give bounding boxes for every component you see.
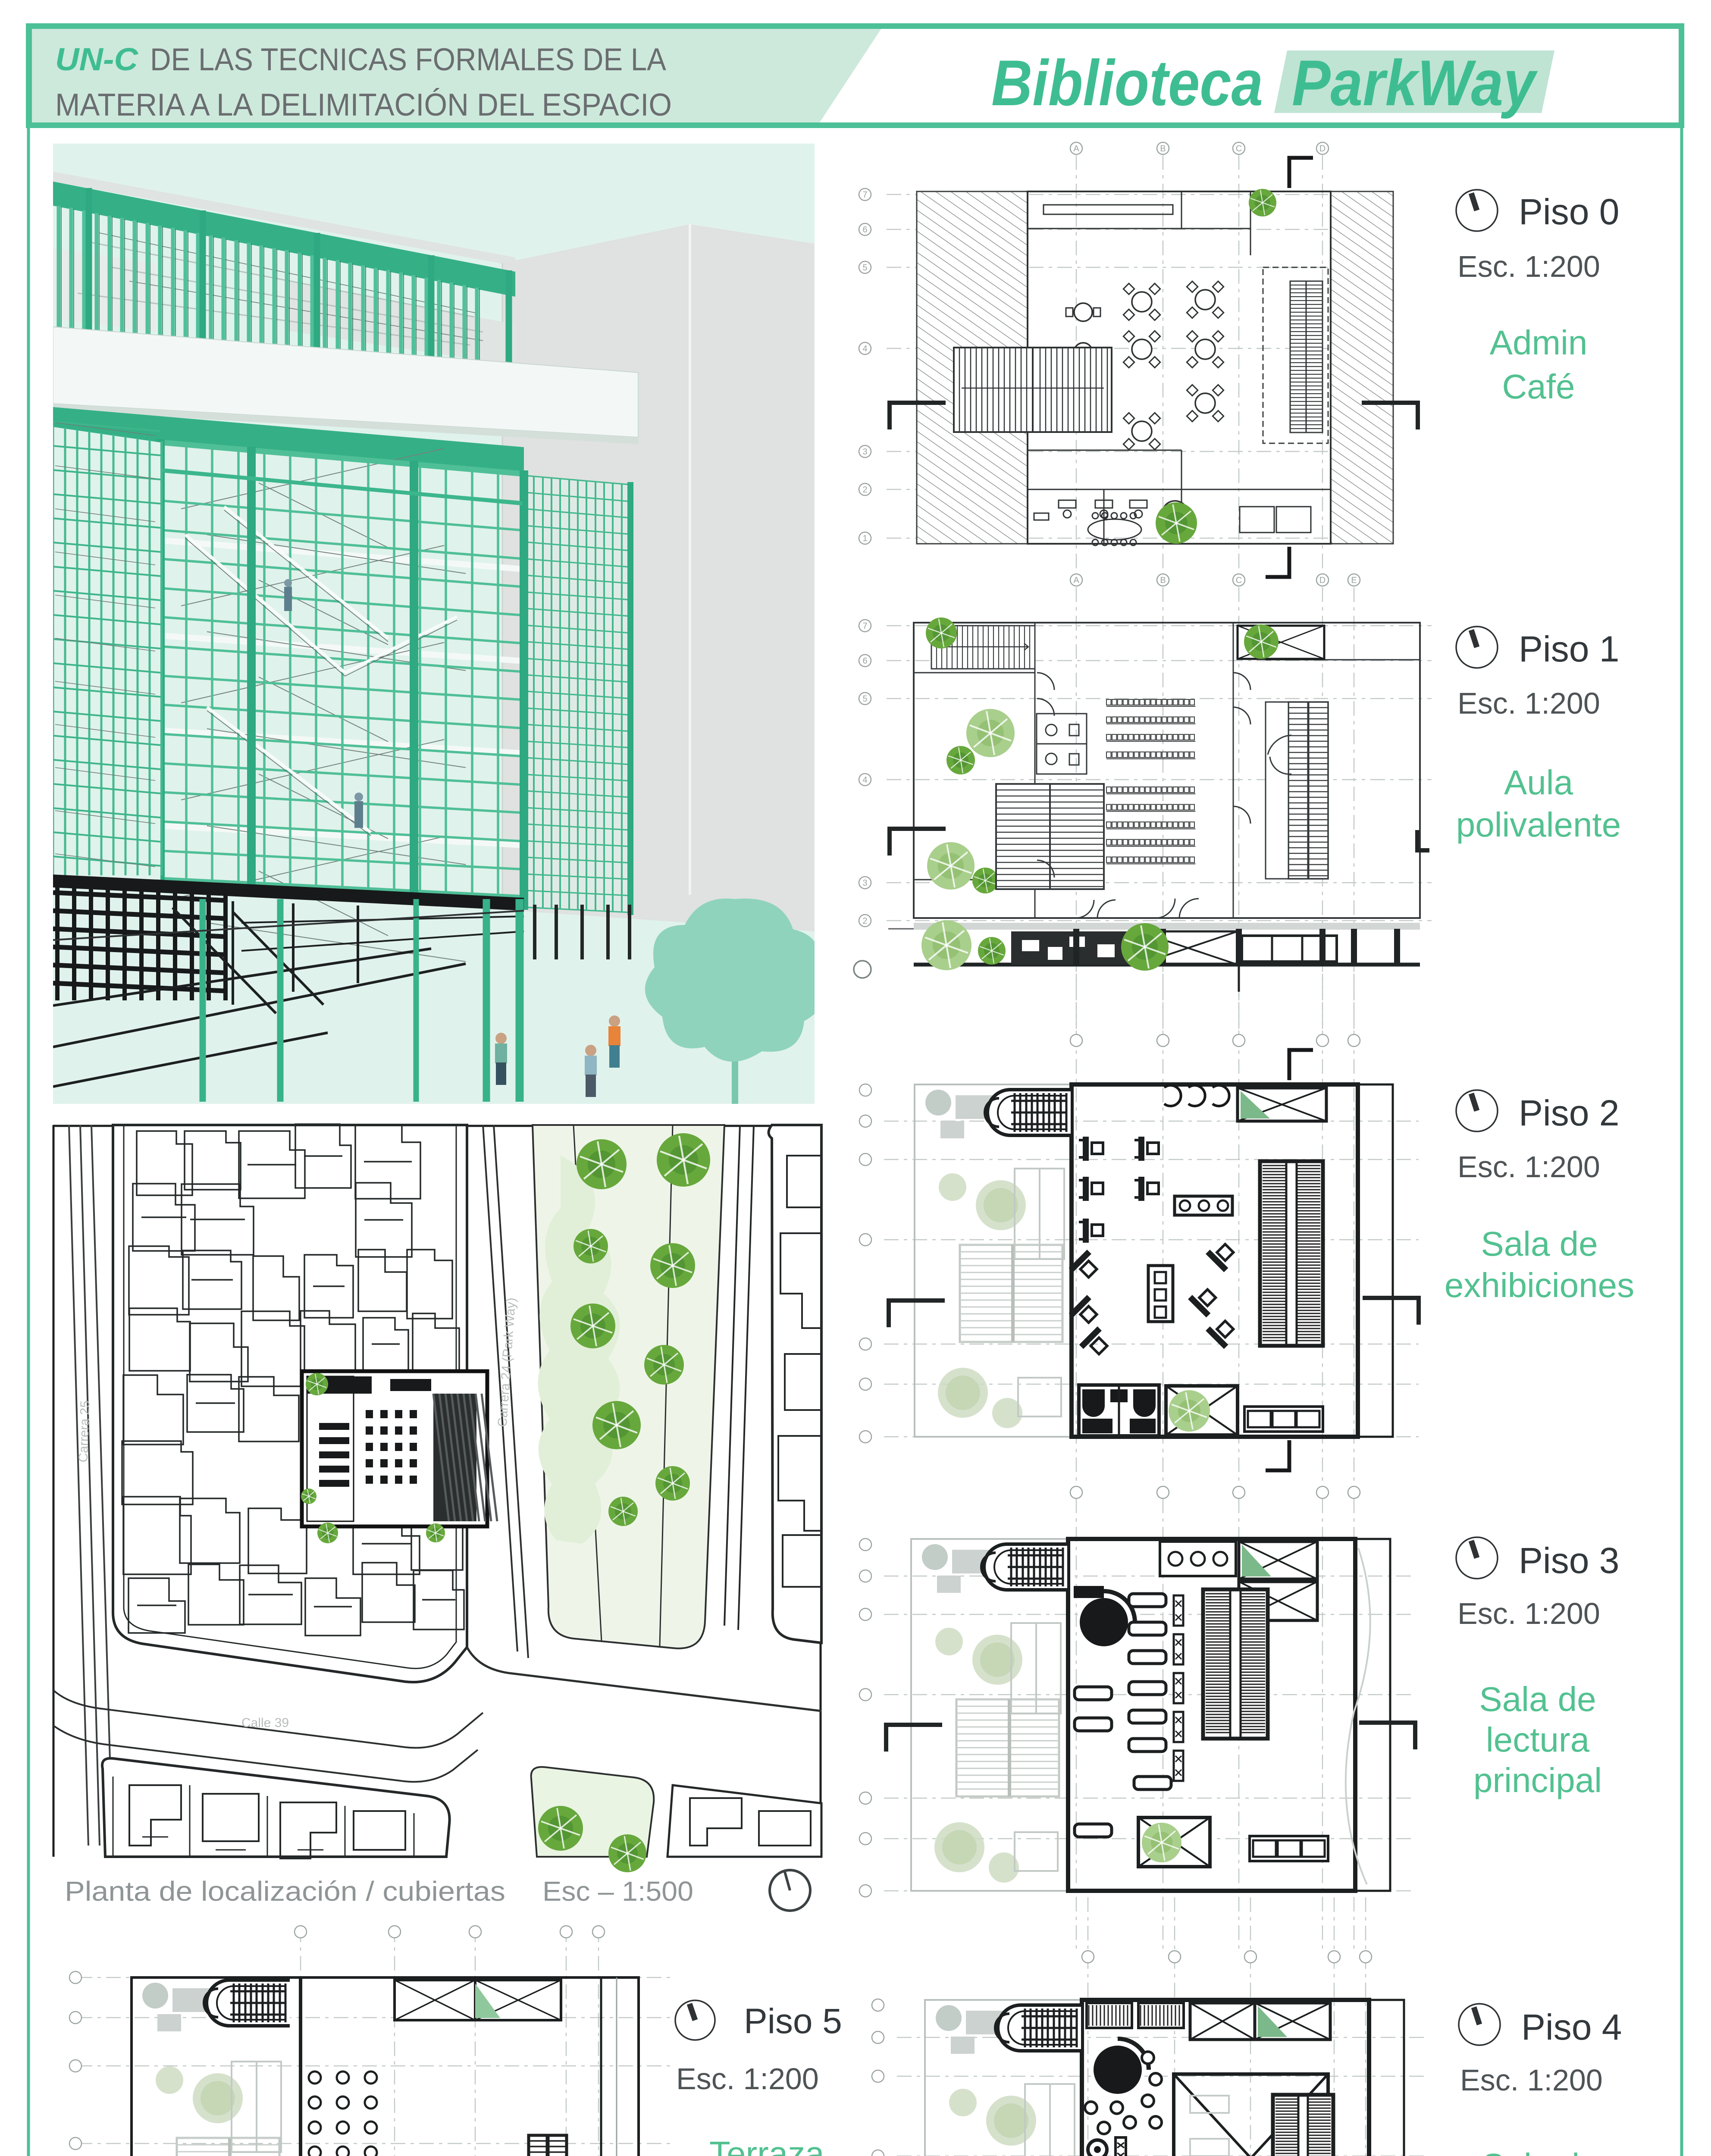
- svg-text:3: 3: [862, 878, 867, 888]
- svg-text:DE LAS TECNICAS FORMALES DE LA: DE LAS TECNICAS FORMALES DE LA: [150, 42, 666, 77]
- svg-text:Sala de: Sala de: [1482, 2147, 1598, 2156]
- svg-text:Piso 3: Piso 3: [1519, 1540, 1619, 1581]
- svg-text:1: 1: [862, 534, 867, 543]
- svg-text:6: 6: [862, 656, 867, 666]
- svg-text:Café: Café: [1502, 367, 1575, 406]
- svg-text:Carrera 25: Carrera 25: [76, 1400, 93, 1462]
- svg-text:Esc. 1:200: Esc. 1:200: [1457, 250, 1600, 283]
- svg-text:D: D: [1319, 144, 1326, 154]
- svg-text:Calle 39: Calle 39: [241, 1716, 289, 1730]
- svg-text:Esc. 1:200: Esc. 1:200: [676, 2062, 819, 2096]
- svg-text:6: 6: [862, 225, 867, 235]
- svg-text:lectura: lectura: [1486, 1720, 1590, 1759]
- svg-text:7: 7: [862, 190, 867, 200]
- svg-text:Esc. 1:200: Esc. 1:200: [1457, 1597, 1600, 1630]
- svg-text:MATERIA A LA DELIMITACIÓN DEL: MATERIA A LA DELIMITACIÓN DEL ESPACIO: [55, 88, 672, 122]
- svg-text:ParkWay: ParkWay: [1292, 47, 1538, 119]
- svg-text:5: 5: [862, 263, 867, 273]
- svg-text:7: 7: [862, 621, 867, 631]
- svg-text:Sala de: Sala de: [1481, 1225, 1598, 1263]
- svg-text:Piso 4: Piso 4: [1521, 2007, 1622, 2047]
- svg-text:UN-C: UN-C: [55, 41, 139, 77]
- svg-text:Terraza: Terraza: [709, 2134, 824, 2156]
- svg-text:B: B: [1160, 144, 1166, 154]
- svg-text:4: 4: [862, 344, 867, 354]
- svg-text:2: 2: [862, 485, 867, 495]
- svg-text:Piso 0: Piso 0: [1519, 191, 1619, 232]
- svg-text:C: C: [1236, 144, 1242, 154]
- svg-text:A: A: [1073, 144, 1079, 154]
- svg-text:Biblioteca: Biblioteca: [991, 47, 1263, 119]
- svg-text:Planta de localización / cubie: Planta de localización / cubiertas: [65, 1876, 505, 1907]
- svg-text:Sala de: Sala de: [1479, 1680, 1596, 1718]
- svg-text:4: 4: [862, 775, 867, 785]
- svg-text:Esc. 1:200: Esc. 1:200: [1457, 686, 1600, 720]
- svg-text:Piso 5: Piso 5: [744, 2002, 842, 2041]
- svg-text:2: 2: [862, 916, 867, 926]
- svg-text:Admin: Admin: [1490, 323, 1588, 362]
- svg-text:Esc. 1:200: Esc. 1:200: [1457, 1150, 1600, 1184]
- svg-text:3: 3: [862, 447, 867, 457]
- svg-text:principal: principal: [1473, 1761, 1602, 1799]
- svg-text:Esc – 1:500: Esc – 1:500: [542, 1876, 693, 1907]
- svg-text:Esc. 1:200: Esc. 1:200: [1460, 2063, 1603, 2097]
- svg-text:D: D: [1319, 576, 1326, 585]
- svg-text:A: A: [1073, 576, 1079, 585]
- svg-text:Aula: Aula: [1504, 763, 1573, 802]
- svg-text:Piso 1: Piso 1: [1519, 629, 1619, 669]
- svg-text:B: B: [1160, 576, 1166, 585]
- svg-text:E: E: [1351, 576, 1357, 585]
- svg-text:Piso 2: Piso 2: [1519, 1093, 1619, 1133]
- svg-text:exhibiciones: exhibiciones: [1445, 1266, 1634, 1304]
- svg-text:C: C: [1236, 576, 1242, 585]
- svg-text:5: 5: [862, 694, 867, 704]
- svg-text:polivalente: polivalente: [1456, 805, 1621, 844]
